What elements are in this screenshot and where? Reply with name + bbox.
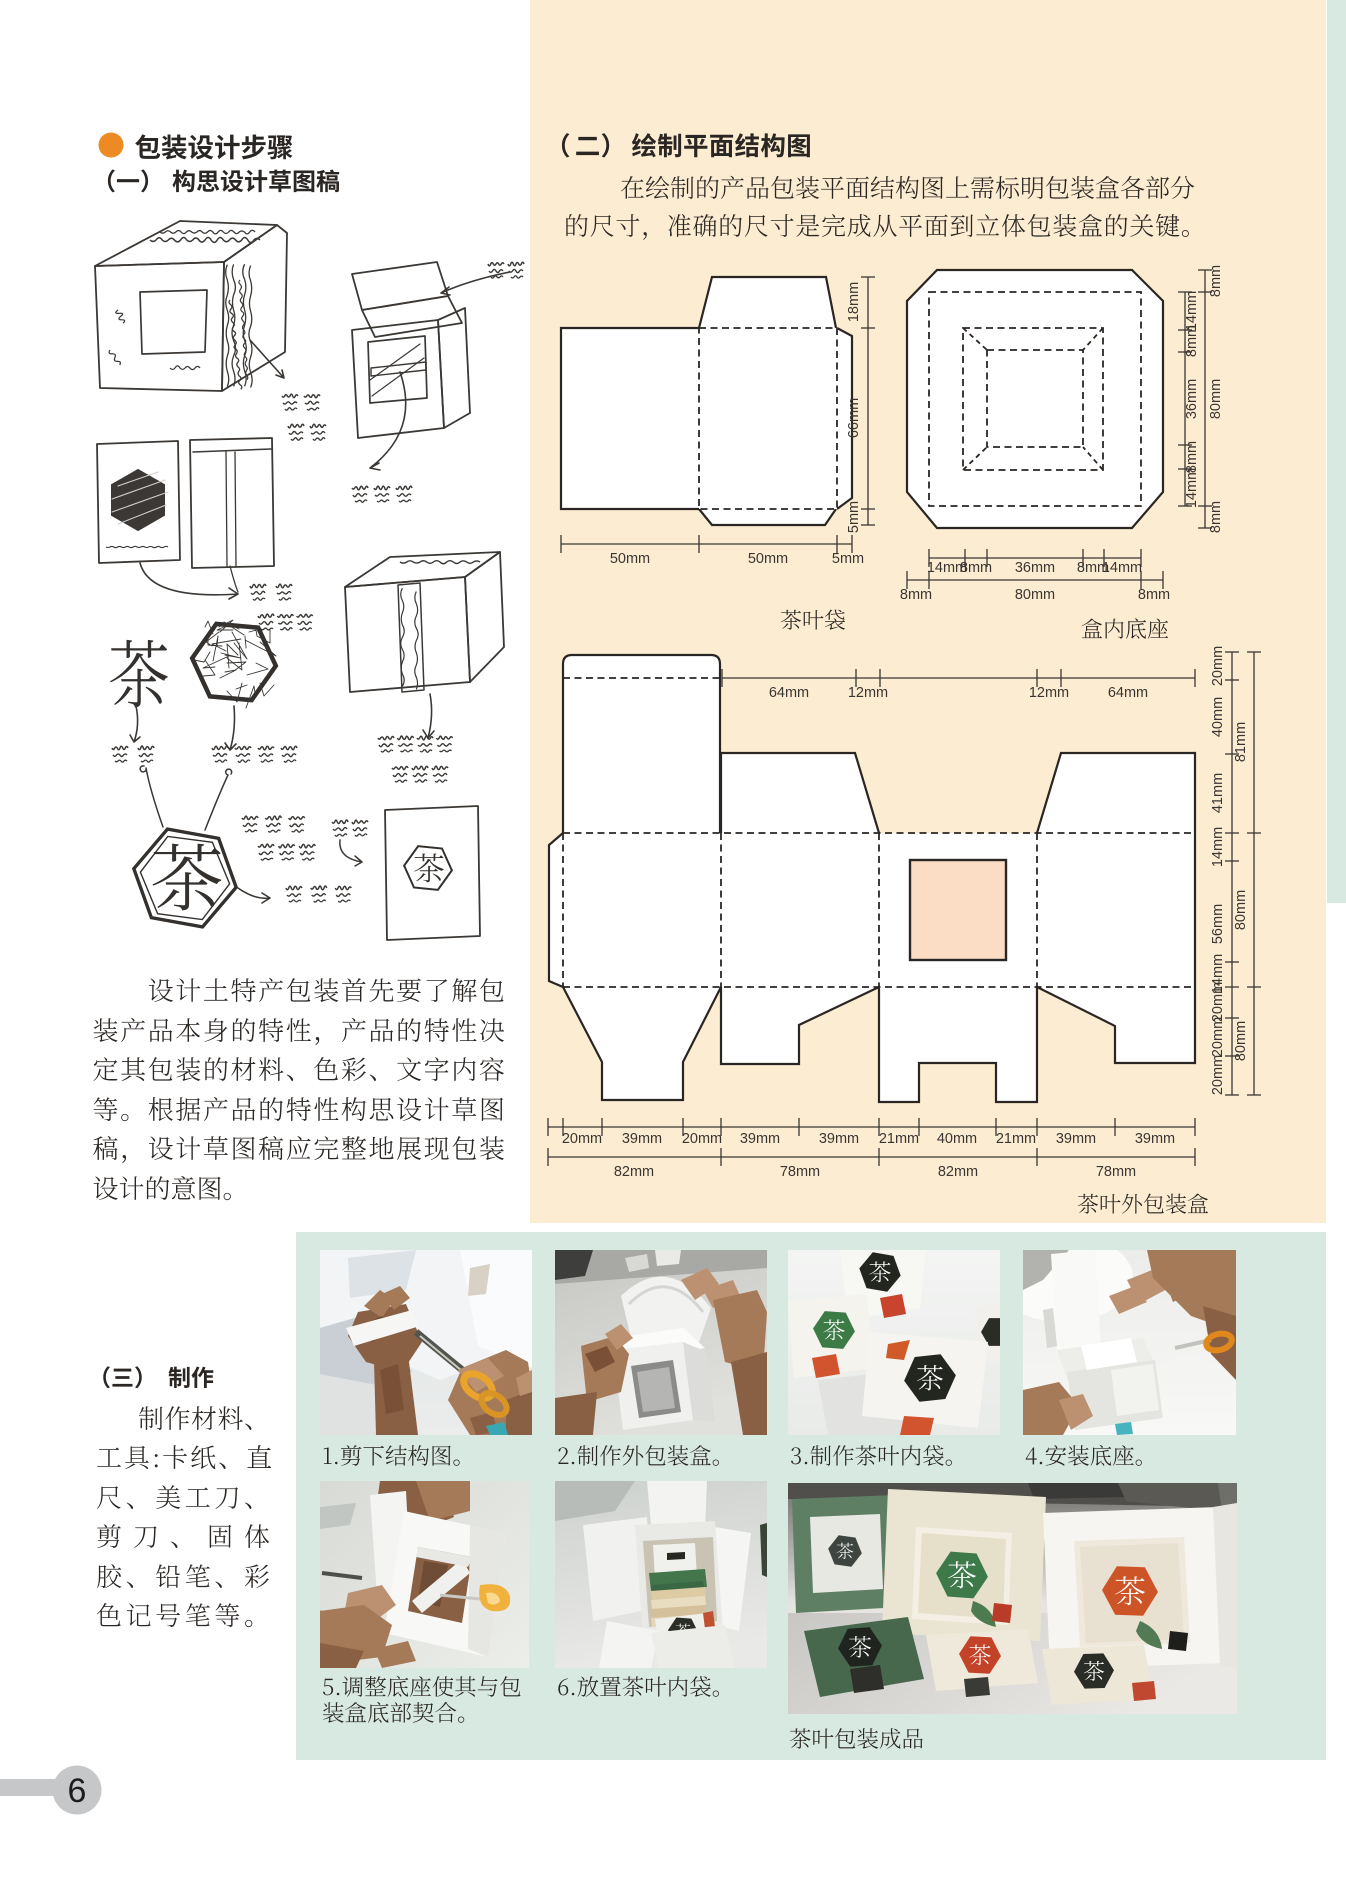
- svg-text:20mm: 20mm: [562, 1131, 602, 1147]
- svg-text:14mm: 14mm: [1102, 560, 1142, 576]
- svg-text:8mm: 8mm: [1208, 501, 1224, 533]
- svg-text:39mm: 39mm: [1135, 1131, 1175, 1147]
- svg-text:12mm: 12mm: [848, 685, 888, 701]
- svg-text:20mm: 20mm: [1210, 646, 1226, 686]
- svg-text:8mm: 8mm: [1138, 587, 1170, 603]
- svg-text:12mm: 12mm: [1029, 685, 1069, 701]
- svg-text:5mm: 5mm: [832, 551, 864, 567]
- svg-text:80mm: 80mm: [1208, 379, 1224, 419]
- svg-text:56mm: 56mm: [1210, 904, 1226, 944]
- svg-text:8mm: 8mm: [900, 587, 932, 603]
- svg-text:18mm: 18mm: [846, 282, 862, 322]
- svg-text:64mm: 64mm: [1108, 685, 1148, 701]
- svg-text:80mm: 80mm: [1233, 890, 1249, 930]
- svg-text:50mm: 50mm: [610, 551, 650, 567]
- svg-text:36mm: 36mm: [1015, 560, 1055, 576]
- svg-text:14mm: 14mm: [1210, 827, 1226, 867]
- svg-text:20mm: 20mm: [1210, 1017, 1226, 1057]
- svg-text:39mm: 39mm: [740, 1131, 780, 1147]
- svg-text:64mm: 64mm: [769, 685, 809, 701]
- svg-text:21mm: 21mm: [996, 1131, 1036, 1147]
- svg-text:20mm: 20mm: [1210, 1055, 1226, 1095]
- svg-text:36mm: 36mm: [1184, 379, 1200, 419]
- svg-text:14mm: 14mm: [1184, 468, 1200, 508]
- svg-text:21mm: 21mm: [879, 1131, 919, 1147]
- svg-text:6: 6: [68, 1772, 87, 1810]
- svg-text:5mm: 5mm: [846, 501, 862, 533]
- svg-text:40mm: 40mm: [1210, 697, 1226, 737]
- svg-text:39mm: 39mm: [1056, 1131, 1096, 1147]
- svg-text:39mm: 39mm: [819, 1131, 859, 1147]
- svg-text:78mm: 78mm: [1096, 1164, 1136, 1180]
- svg-text:8mm: 8mm: [1208, 265, 1224, 297]
- svg-text:50mm: 50mm: [748, 551, 788, 567]
- svg-text:41mm: 41mm: [1210, 773, 1226, 813]
- svg-text:20mm: 20mm: [682, 1131, 722, 1147]
- svg-text:78mm: 78mm: [780, 1164, 820, 1180]
- svg-text:81mm: 81mm: [1233, 722, 1249, 762]
- svg-text:40mm: 40mm: [937, 1131, 977, 1147]
- svg-text:82mm: 82mm: [938, 1164, 978, 1180]
- svg-text:39mm: 39mm: [622, 1131, 662, 1147]
- svg-text:80mm: 80mm: [1233, 1021, 1249, 1061]
- svg-text:82mm: 82mm: [614, 1164, 654, 1180]
- svg-text:8mm: 8mm: [960, 560, 992, 576]
- svg-text:8mm: 8mm: [1184, 325, 1200, 357]
- svg-text:20mm: 20mm: [1210, 982, 1226, 1022]
- svg-text:80mm: 80mm: [1015, 587, 1055, 603]
- svg-text:66mm: 66mm: [846, 398, 862, 438]
